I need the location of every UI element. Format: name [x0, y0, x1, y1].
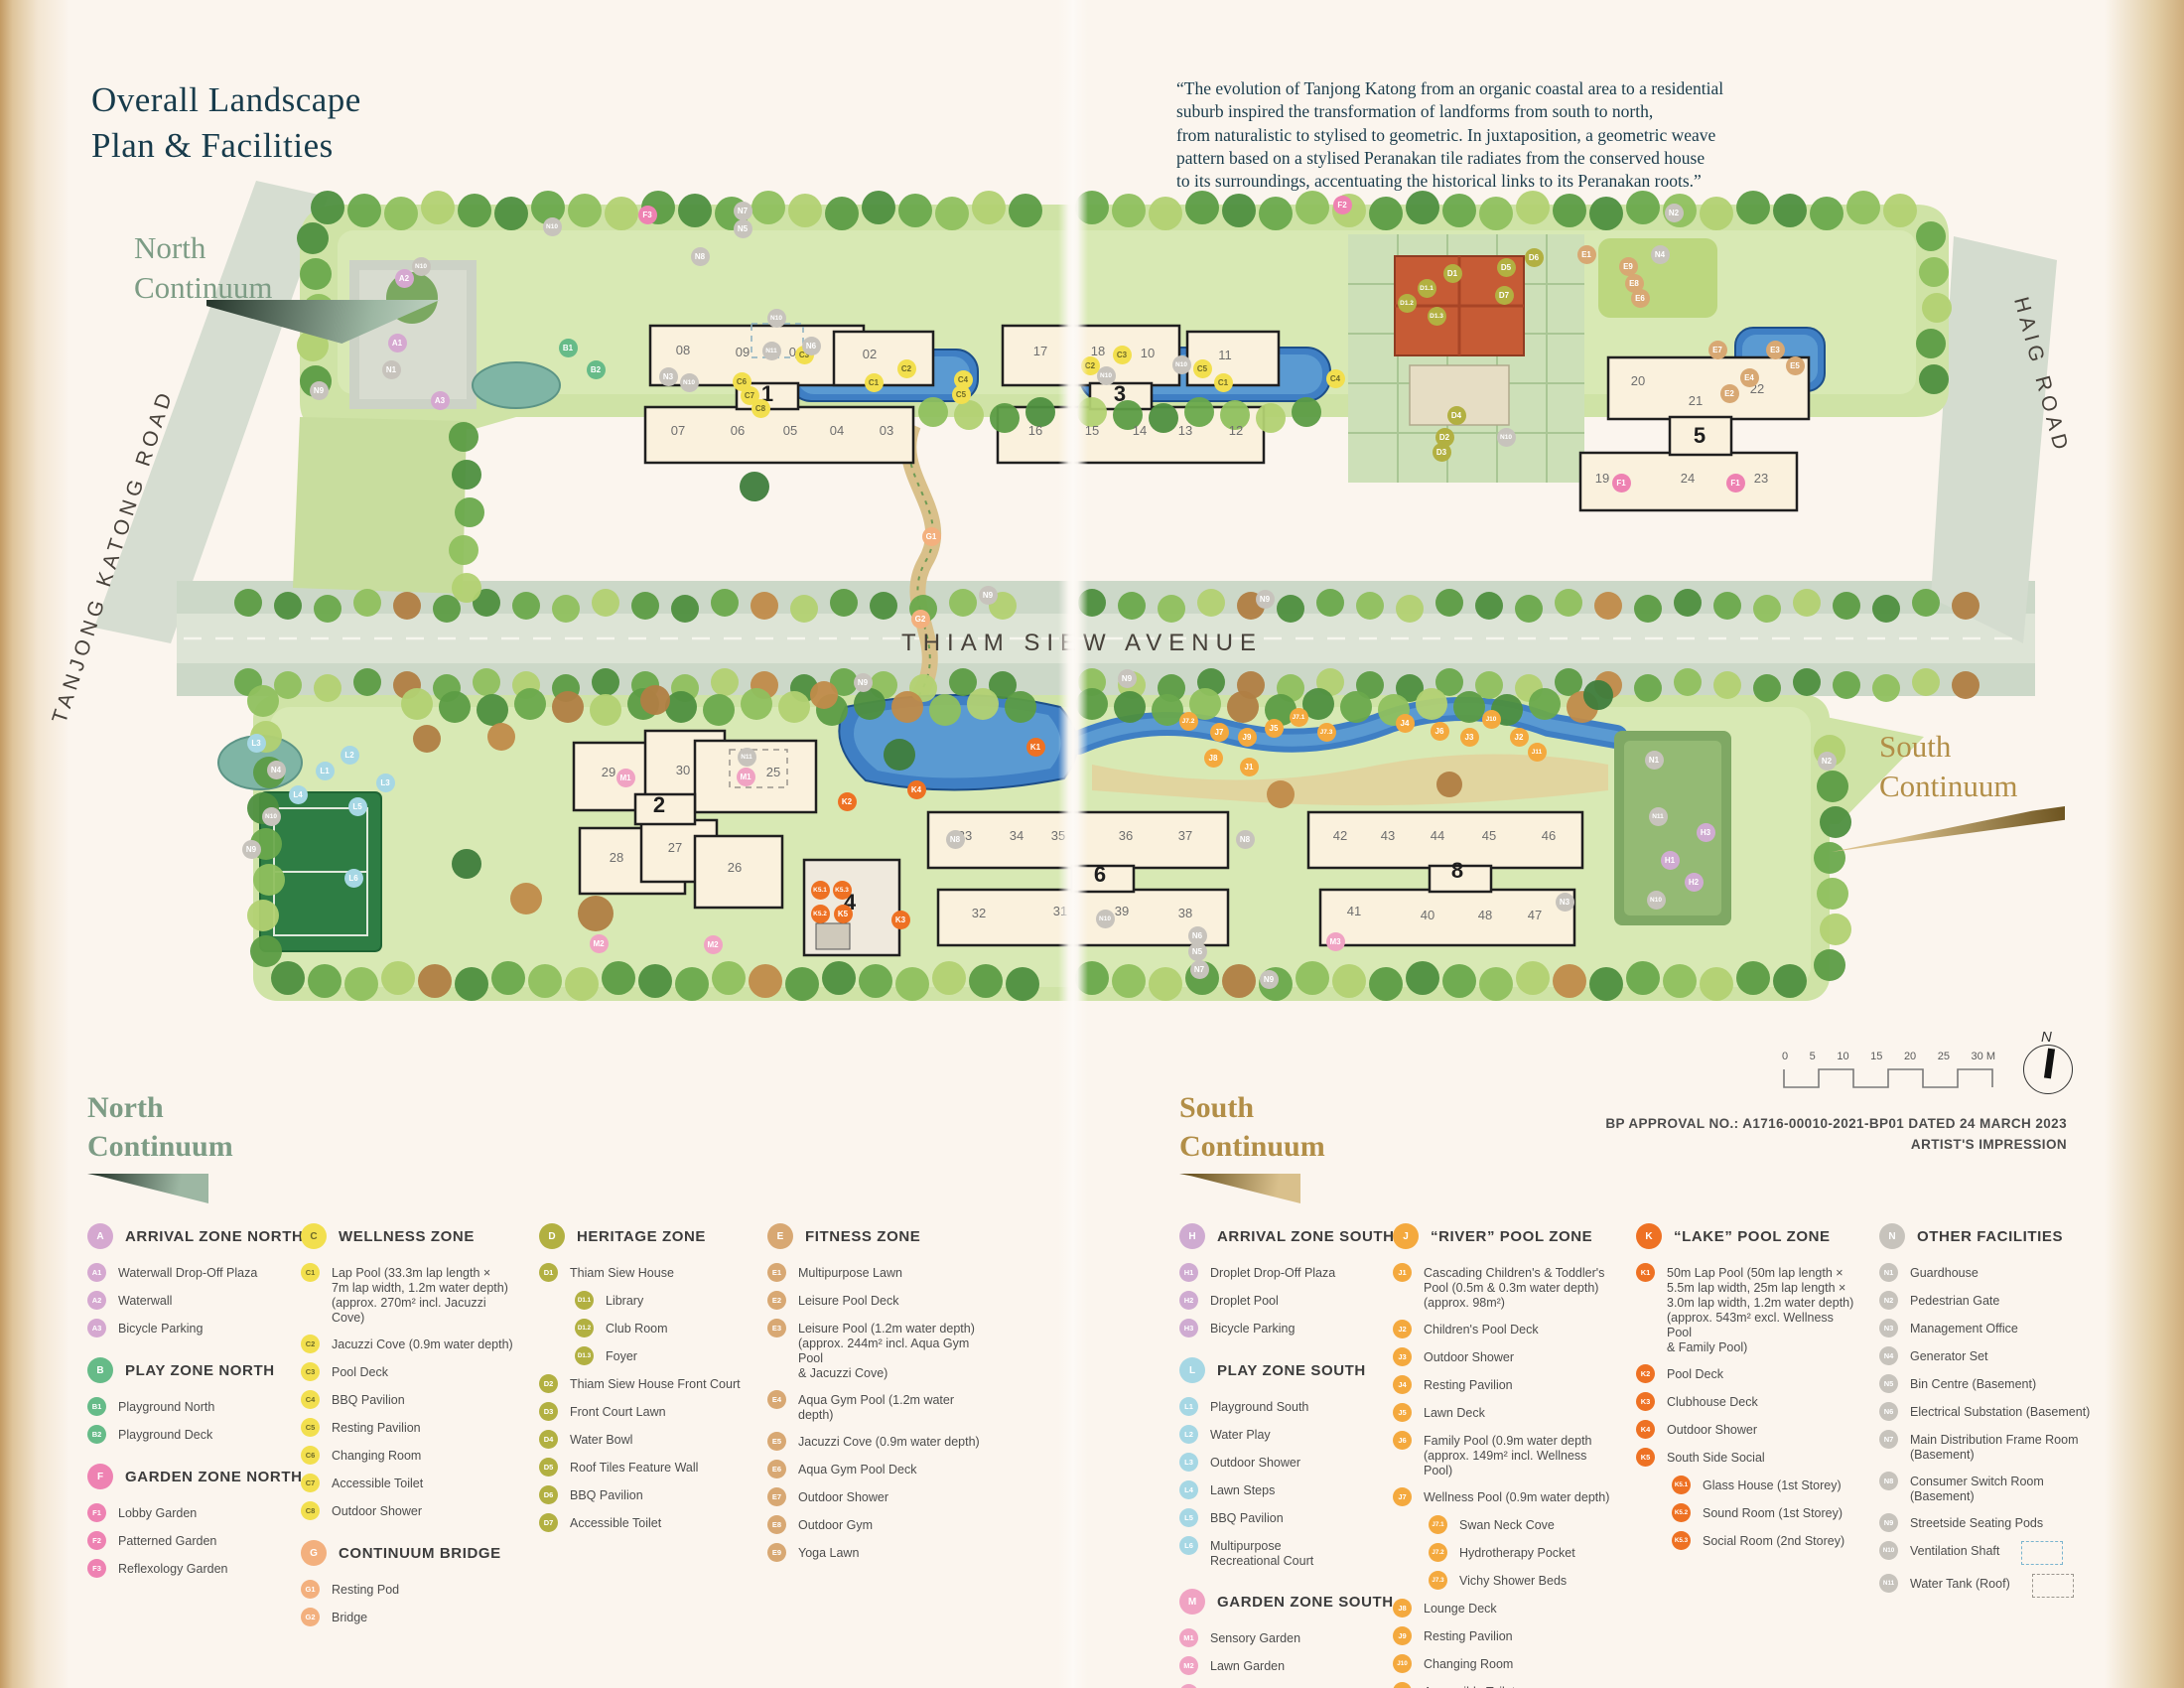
map-marker-n8: N8 — [946, 830, 965, 849]
legend-column: K“LAKE” POOL ZONEK150m Lap Pool (50m lap… — [1636, 1203, 1854, 1559]
legend-zone-badge: C — [301, 1223, 327, 1249]
legend-item-label: Pool Deck — [332, 1362, 388, 1380]
map-marker-n10: N10 — [1096, 910, 1115, 928]
legend-item-badge: K5.1 — [1672, 1476, 1691, 1494]
unit-12: 12 — [1229, 423, 1243, 438]
legend-item-badge: J8 — [1393, 1599, 1412, 1618]
legend-item-label: Thiam Siew House Front Court — [570, 1374, 741, 1392]
map-marker-d4: D4 — [1447, 406, 1466, 425]
scale-tick: 30 M — [1972, 1051, 1995, 1062]
legend-item-label: Lobby Garden — [118, 1503, 197, 1521]
legend-item-badge: N11 — [1879, 1574, 1898, 1593]
legend-item-badge: E5 — [767, 1432, 786, 1451]
legend-item-k5-3: K5.3Social Room (2nd Storey) — [1672, 1531, 1854, 1550]
legend-item-label: Lap Pool (33.3m lap length × 7m lap widt… — [332, 1263, 519, 1326]
legend-item-badge: E9 — [767, 1543, 786, 1562]
legend-item-n2: N2Pedestrian Gate — [1879, 1291, 2098, 1310]
unit-38: 38 — [1178, 906, 1192, 920]
legend-item-label: Leisure Pool (1.2m water depth) (approx.… — [798, 1319, 986, 1381]
legend-column: EFITNESS ZONEE1Multipurpose LawnE2Leisur… — [767, 1203, 986, 1571]
legend-item-e6: E6Aqua Gym Pool Deck — [767, 1460, 986, 1478]
legend-zone-e: EFITNESS ZONE — [767, 1223, 986, 1249]
map-marker-n10: N10 — [412, 257, 431, 276]
legend-item-badge: M3 — [1179, 1684, 1198, 1688]
map-marker-d1.1: D1.1 — [1418, 279, 1436, 298]
map-marker-k5.3: K5.3 — [833, 881, 852, 900]
legend-item-l3: L3Outdoor Shower — [1179, 1453, 1398, 1472]
legend-item-d3: D3Front Court Lawn — [539, 1402, 757, 1421]
legend-zone-name: PLAY ZONE NORTH — [125, 1362, 275, 1379]
unit-03: 03 — [880, 423, 893, 438]
map-marker-d5: D5 — [1497, 258, 1516, 277]
legend-item-label: Cascading Children's & Toddler's Pool (0… — [1424, 1263, 1604, 1311]
map-marker-n3: N3 — [1556, 893, 1574, 912]
legend-item-badge: D1.1 — [575, 1291, 594, 1310]
unit-20: 20 — [1631, 373, 1645, 388]
map-marker-j9: J9 — [1238, 728, 1257, 747]
map-marker-n9: N9 — [1260, 970, 1279, 989]
legend-item-badge: E6 — [767, 1460, 786, 1478]
legend-item-badge: J5 — [1393, 1403, 1412, 1422]
legend-item-k2: K2Pool Deck — [1636, 1364, 1854, 1383]
legend-item-label: Outdoor Shower — [1424, 1347, 1514, 1365]
legend-item-d1-2: D1.2Club Room — [575, 1319, 757, 1337]
scale-tick: 10 — [1837, 1051, 1848, 1062]
unit-42: 42 — [1333, 828, 1347, 843]
map-marker-k1: K1 — [1026, 738, 1045, 757]
legend-item-label: Resting Pavilion — [332, 1418, 421, 1436]
compass: N — [2017, 1033, 2079, 1094]
unit-11: 11 — [1218, 348, 1232, 362]
legend-item-l2: L2Water Play — [1179, 1425, 1398, 1444]
map-marker-c2: C2 — [897, 359, 916, 378]
legend-item-e5: E5Jacuzzi Cove (0.9m water depth) — [767, 1432, 986, 1451]
legend-item-e2: E2Leisure Pool Deck — [767, 1291, 986, 1310]
legend-item-m2: M2Lawn Garden — [1179, 1656, 1398, 1675]
legend-item-label: Club Room — [606, 1319, 668, 1336]
unit-35: 35 — [1051, 828, 1065, 843]
legend-item-label: Bridge — [332, 1608, 367, 1625]
map-marker-f3: F3 — [638, 206, 657, 224]
legend-item-j7-1: J7.1Swan Neck Cove — [1429, 1515, 1611, 1534]
map-marker-n8: N8 — [691, 247, 710, 266]
legend-zone-badge: A — [87, 1223, 113, 1249]
legend-item-badge: N5 — [1879, 1374, 1898, 1393]
legend-item-k4: K4Outdoor Shower — [1636, 1420, 1854, 1439]
legend-zone-badge: D — [539, 1223, 565, 1249]
legend-zone-badge: K — [1636, 1223, 1662, 1249]
legend-item-j3: J3Outdoor Shower — [1393, 1347, 1611, 1366]
map-marker-l1: L1 — [316, 762, 335, 780]
map-marker-m1: M1 — [616, 769, 635, 787]
legend-item-badge: F3 — [87, 1559, 106, 1578]
map-marker-e6: E6 — [1631, 289, 1650, 308]
map-marker-d3: D3 — [1433, 443, 1451, 462]
legend-item-c4: C4BBQ Pavilion — [301, 1390, 519, 1409]
map-marker-h2: H2 — [1685, 873, 1704, 892]
legend-item-badge: G1 — [301, 1580, 320, 1599]
legend-zone-name: CONTINUUM BRIDGE — [339, 1545, 501, 1562]
legend-item-badge: J9 — [1393, 1626, 1412, 1645]
legend-item-badge: K5 — [1636, 1448, 1655, 1467]
map-marker-j2: J2 — [1510, 728, 1529, 747]
legend-item-badge: D7 — [539, 1513, 558, 1532]
legend-item-l4: L4Lawn Steps — [1179, 1480, 1398, 1499]
map-marker-c1: C1 — [865, 373, 884, 392]
legend-item-label: Management Office — [1910, 1319, 2018, 1336]
legend-item-j7-2: J7.2Hydrotherapy Pocket — [1429, 1543, 1611, 1562]
unit-29: 29 — [602, 765, 615, 779]
legend-item-n1: N1Guardhouse — [1879, 1263, 2098, 1282]
legend-item-badge: N7 — [1879, 1430, 1898, 1449]
unit-16: 16 — [1028, 423, 1042, 438]
legend-item-h3: H3Bicycle Parking — [1179, 1319, 1398, 1337]
legend-item-j7: J7Wellness Pool (0.9m water depth) — [1393, 1487, 1611, 1506]
legend-item-badge: E4 — [767, 1390, 786, 1409]
legend-item-badge: N2 — [1879, 1291, 1898, 1310]
map-marker-e2: E2 — [1720, 384, 1739, 403]
map-marker-n7: N7 — [734, 202, 752, 220]
legend-item-c7: C7Accessible Toilet — [301, 1474, 519, 1492]
map-marker-n10: N10 — [680, 373, 699, 392]
map-marker-g2: G2 — [911, 610, 930, 629]
legend-zone-name: OTHER FACILITIES — [1917, 1228, 2063, 1245]
legend-item-n5: N5Bin Centre (Basement) — [1879, 1374, 2098, 1393]
map-marker-e3: E3 — [1766, 341, 1785, 359]
legend-item-label: Accessible Toilet — [332, 1474, 423, 1491]
map-marker-m2: M2 — [590, 934, 609, 953]
legend-item-badge: A1 — [87, 1263, 106, 1282]
scale-tick: 0 — [1782, 1051, 1788, 1062]
legend-item-label: Outdoor Shower — [798, 1487, 888, 1505]
scale-bar-steps — [1782, 1065, 1995, 1091]
legend-item-badge: D4 — [539, 1430, 558, 1449]
map-marker-f2: F2 — [1333, 196, 1352, 214]
map-marker-c5: C5 — [952, 385, 971, 404]
legend-item-d4: D4Water Bowl — [539, 1430, 757, 1449]
legend-item-badge: J7.3 — [1429, 1571, 1447, 1590]
legend-item-badge: C6 — [301, 1446, 320, 1465]
unit-06: 06 — [731, 423, 745, 438]
unit-26: 26 — [728, 860, 742, 875]
map-marker-k2: K2 — [838, 792, 857, 811]
legend-item-c3: C3Pool Deck — [301, 1362, 519, 1381]
legend-item-e7: E7Outdoor Shower — [767, 1487, 986, 1506]
map-marker-j4: J4 — [1396, 714, 1415, 733]
legend-item-badge: K5.3 — [1672, 1531, 1691, 1550]
legend-item-label: Library — [606, 1291, 643, 1309]
legend-zone-c: CWELLNESS ZONE — [301, 1223, 519, 1249]
map-marker-k4: K4 — [907, 780, 926, 799]
legend-item-label: Outdoor Shower — [1667, 1420, 1757, 1438]
map-marker-k5: K5 — [834, 905, 853, 923]
legend-item-badge: G2 — [301, 1608, 320, 1626]
legend-item-label: Reflexology Garden — [118, 1559, 227, 1577]
legend-item-label: Hydrotherapy Pocket — [1459, 1543, 1575, 1561]
unit-09: 09 — [736, 345, 750, 359]
legend-item-e3: E3Leisure Pool (1.2m water depth) (appro… — [767, 1319, 986, 1381]
legend-item-j11: J11Accessible Toilet — [1393, 1682, 1611, 1688]
legend-south-wedge — [1179, 1174, 1300, 1203]
unit-47: 47 — [1528, 908, 1542, 922]
legend-item-n10: N10Ventilation Shaft — [1879, 1541, 2098, 1565]
legend-item-label: Pool Deck — [1667, 1364, 1723, 1382]
legend-item-badge: F2 — [87, 1531, 106, 1550]
legend-item-label: Waterwall — [118, 1291, 172, 1309]
unit-39: 39 — [1115, 904, 1129, 918]
map-marker-c8: C8 — [751, 399, 770, 418]
map-marker-d1.3: D1.3 — [1428, 307, 1446, 326]
legend-item-label: Lawn Deck — [1424, 1403, 1485, 1421]
legend-item-label: Swan Neck Cove — [1459, 1515, 1555, 1533]
map-marker-n8: N8 — [1236, 830, 1255, 849]
legend-zone-name: ARRIVAL ZONE NORTH — [125, 1228, 303, 1245]
legend-swatch-dashed-blue — [2021, 1541, 2063, 1565]
legend-item-badge: E1 — [767, 1263, 786, 1282]
legend-item-label: Bicycle Parking — [118, 1319, 203, 1336]
legend-item-badge: H3 — [1179, 1319, 1198, 1337]
map-marker-n10: N10 — [543, 217, 562, 236]
legend-item-m3: M3Reflexology Garden — [1179, 1684, 1398, 1688]
legend-item-c2: C2Jacuzzi Cove (0.9m water depth) — [301, 1335, 519, 1353]
legend-item-j10: J10Changing Room — [1393, 1654, 1611, 1673]
legend-item-badge: D1 — [539, 1263, 558, 1282]
legend-item-badge: J4 — [1393, 1375, 1412, 1394]
unit-08: 08 — [676, 343, 690, 357]
unit-24: 24 — [1681, 471, 1695, 486]
map-marker-d6: D6 — [1525, 248, 1544, 267]
map-marker-k3: K3 — [891, 911, 910, 929]
unit-43: 43 — [1381, 828, 1395, 843]
map-marker-k5.1: K5.1 — [811, 881, 830, 900]
legend-item-badge: E2 — [767, 1291, 786, 1310]
unit-41: 41 — [1347, 904, 1361, 918]
legend-item-d1: D1Thiam Siew House — [539, 1263, 757, 1282]
legend-item-j7-3: J7.3Vichy Shower Beds — [1429, 1571, 1611, 1590]
legend-item-d5: D5Roof Tiles Feature Wall — [539, 1458, 757, 1477]
map-marker-h3: H3 — [1697, 823, 1715, 842]
legend-item-badge: J6 — [1393, 1431, 1412, 1450]
unit-32: 32 — [972, 906, 986, 920]
legend-zone-j: J“RIVER” POOL ZONE — [1393, 1223, 1611, 1249]
legend-item-h1: H1Droplet Drop-Off Plaza — [1179, 1263, 1398, 1282]
legend-item-badge: L5 — [1179, 1508, 1198, 1527]
legend-item-label: Leisure Pool Deck — [798, 1291, 898, 1309]
legend-item-badge: H2 — [1179, 1291, 1198, 1310]
bio-pond — [473, 362, 560, 408]
legend-zone-f: FGARDEN ZONE NORTH — [87, 1464, 306, 1489]
legend-item-n8: N8Consumer Switch Room (Basement) — [1879, 1472, 2098, 1504]
unit-46: 46 — [1542, 828, 1556, 843]
map-marker-k5.2: K5.2 — [811, 905, 830, 923]
legend-zone-badge: L — [1179, 1357, 1205, 1383]
legend-item-label: Lounge Deck — [1424, 1599, 1497, 1617]
legend-item-j2: J2Children's Pool Deck — [1393, 1320, 1611, 1338]
legend-item-badge: D5 — [539, 1458, 558, 1477]
road-label-thiam-siew: THIAM SIEW AVENUE — [901, 630, 1263, 656]
map-marker-n3: N3 — [659, 367, 678, 386]
legend-item-badge: N3 — [1879, 1319, 1898, 1337]
legend-item-label: Clubhouse Deck — [1667, 1392, 1758, 1410]
map-marker-h1: H1 — [1661, 851, 1680, 870]
unit-17: 17 — [1033, 344, 1047, 358]
legend-item-badge: M1 — [1179, 1628, 1198, 1647]
map-marker-n11: N11 — [762, 342, 781, 360]
map-marker-n10: N10 — [1647, 891, 1666, 910]
legend-item-a2: A2Waterwall — [87, 1291, 306, 1310]
legend-item-badge: E3 — [767, 1319, 786, 1337]
unit-10: 10 — [1141, 346, 1155, 360]
legend-item-badge: L6 — [1179, 1536, 1198, 1555]
legend-zone-name: FITNESS ZONE — [805, 1228, 920, 1245]
unit-31: 31 — [1053, 904, 1067, 918]
legend-item-label: Droplet Drop-Off Plaza — [1210, 1263, 1335, 1281]
legend-item-label: Multipurpose Recreational Court — [1210, 1536, 1313, 1569]
legend-item-label: Ventilation Shaft — [1910, 1541, 1999, 1559]
legend-zone-badge: B — [87, 1357, 113, 1383]
road-haig — [1931, 236, 2057, 643]
legend-item-badge: C7 — [301, 1474, 320, 1492]
legend-item-label: Jacuzzi Cove (0.9m water depth) — [798, 1432, 980, 1450]
legend-item-badge: N10 — [1879, 1541, 1898, 1560]
legend-item-badge: J1 — [1393, 1263, 1412, 1282]
legend-item-j6: J6Family Pool (0.9m water depth (approx.… — [1393, 1431, 1611, 1478]
map-marker-j3: J3 — [1460, 728, 1479, 747]
map-marker-c4: C4 — [1326, 369, 1345, 388]
legend-item-badge: N9 — [1879, 1513, 1898, 1532]
legend-zone-badge: H — [1179, 1223, 1205, 1249]
legend-item-label: BBQ Pavilion — [1210, 1508, 1284, 1526]
legend-item-j9: J9Resting Pavilion — [1393, 1626, 1611, 1645]
legend-item-label: Outdoor Shower — [1210, 1453, 1300, 1471]
legend-item-label: Multipurpose Lawn — [798, 1263, 902, 1281]
legend-item-badge: K2 — [1636, 1364, 1655, 1383]
legend-item-e9: E9Yoga Lawn — [767, 1543, 986, 1562]
legend-item-label: Accessible Toilet — [1424, 1682, 1515, 1688]
compass-north-label: N — [2041, 1029, 2052, 1046]
legend-item-l5: L5BBQ Pavilion — [1179, 1508, 1398, 1527]
legend-item-badge: C8 — [301, 1501, 320, 1520]
legend-zone-h: HARRIVAL ZONE SOUTH — [1179, 1223, 1398, 1249]
legend-zone-b: BPLAY ZONE NORTH — [87, 1357, 306, 1383]
map-marker-b1: B1 — [559, 339, 578, 357]
legend-item-label: Aqua Gym Pool (1.2m water depth) — [798, 1390, 986, 1423]
legend-item-a1: A1Waterwall Drop-Off Plaza — [87, 1263, 306, 1282]
legend-item-badge: L4 — [1179, 1480, 1198, 1499]
legend-item-f2: F2Patterned Garden — [87, 1531, 306, 1550]
unit-19: 19 — [1595, 471, 1609, 486]
legend-item-label: Family Pool (0.9m water depth (approx. 1… — [1424, 1431, 1611, 1478]
legend-item-label: Roof Tiles Feature Wall — [570, 1458, 698, 1476]
map-marker-n10: N10 — [1497, 428, 1516, 447]
legend-item-badge: D6 — [539, 1485, 558, 1504]
legend-item-label: Outdoor Shower — [332, 1501, 422, 1519]
scale-bar: 051015202530 M — [1782, 1051, 1995, 1096]
map-marker-f1: F1 — [1726, 474, 1745, 492]
map-marker-n9: N9 — [979, 586, 998, 605]
legend-item-f1: F1Lobby Garden — [87, 1503, 306, 1522]
unit-45: 45 — [1482, 828, 1496, 843]
legend-item-label: Reflexology Garden — [1210, 1684, 1319, 1688]
legend-zone-name: ARRIVAL ZONE SOUTH — [1217, 1228, 1395, 1245]
legend-item-label: Patterned Garden — [118, 1531, 216, 1549]
legend-item-l6: L6Multipurpose Recreational Court — [1179, 1536, 1398, 1569]
map-marker-n7: N7 — [1190, 960, 1209, 979]
legend-zone-name: WELLNESS ZONE — [339, 1228, 475, 1245]
legend-item-badge: L2 — [1179, 1425, 1198, 1444]
map-marker-e4: E4 — [1740, 368, 1759, 387]
unit-02: 02 — [863, 347, 877, 361]
map-marker-l5: L5 — [348, 797, 367, 816]
unit-14: 14 — [1133, 423, 1147, 438]
legend-item-label: Water Play — [1210, 1425, 1271, 1443]
map-marker-n11: N11 — [1649, 807, 1668, 826]
legend-item-d1-1: D1.1Library — [575, 1291, 757, 1310]
legend-item-n11: N11Water Tank (Roof) — [1879, 1574, 2098, 1598]
legend-zone-m: MGARDEN ZONE SOUTH — [1179, 1589, 1398, 1615]
map-marker-n10: N10 — [262, 807, 281, 826]
legend-item-badge: J11 — [1393, 1682, 1412, 1688]
legend-item-a3: A3Bicycle Parking — [87, 1319, 306, 1337]
map-marker-a2: A2 — [395, 269, 414, 288]
scale-tick: 25 — [1938, 1051, 1950, 1062]
brochure-spread: Overall Landscape Plan & Facilities “The… — [0, 0, 2184, 1688]
unit-40: 40 — [1421, 908, 1434, 922]
unit-36: 36 — [1119, 828, 1133, 843]
legend-item-g1: G1Resting Pod — [301, 1580, 519, 1599]
map-marker-n9: N9 — [242, 840, 261, 859]
legend-item-k5-1: K5.1Glass House (1st Storey) — [1672, 1476, 1854, 1494]
map-marker-j10: J10 — [1482, 710, 1501, 729]
legend-column: HARRIVAL ZONE SOUTHH1Droplet Drop-Off Pl… — [1179, 1203, 1398, 1688]
legend-item-n6: N6Electrical Substation (Basement) — [1879, 1402, 2098, 1421]
legend-item-badge: A3 — [87, 1319, 106, 1337]
map-marker-l6: L6 — [344, 869, 363, 888]
legend-item-badge: N6 — [1879, 1402, 1898, 1421]
unit-37: 37 — [1178, 828, 1192, 843]
legend-item-label: Resting Pavilion — [1424, 1375, 1513, 1393]
legend-item-label: Outdoor Gym — [798, 1515, 873, 1533]
scale-tick: 15 — [1870, 1051, 1882, 1062]
map-marker-f1: F1 — [1612, 474, 1631, 492]
legend-item-badge: C4 — [301, 1390, 320, 1409]
legend-item-badge: C3 — [301, 1362, 320, 1381]
legend-column: DHERITAGE ZONED1Thiam Siew HouseD1.1Libr… — [539, 1203, 757, 1541]
map-marker-e9: E9 — [1619, 257, 1638, 276]
legend-item-label: Wellness Pool (0.9m water depth) — [1424, 1487, 1609, 1505]
legend-item-label: South Side Social — [1667, 1448, 1765, 1466]
legend-zone-name: GARDEN ZONE SOUTH — [1217, 1594, 1394, 1611]
legend-item-d7: D7Accessible Toilet — [539, 1513, 757, 1532]
unit-25: 25 — [766, 765, 780, 779]
map-marker-n2: N2 — [1665, 204, 1684, 222]
legend-item-label: Aqua Gym Pool Deck — [798, 1460, 917, 1477]
map-marker-l2: L2 — [341, 746, 359, 765]
legend-item-c8: C8Outdoor Shower — [301, 1501, 519, 1520]
map-marker-n4: N4 — [1651, 245, 1670, 264]
map-marker-g1: G1 — [922, 527, 941, 546]
map-marker-n9: N9 — [1256, 590, 1275, 609]
legend-item-badge: N8 — [1879, 1472, 1898, 1490]
map-marker-a1: A1 — [388, 334, 407, 352]
legend-column: J“RIVER” POOL ZONEJ1Cascading Children's… — [1393, 1203, 1611, 1688]
legend-zone-n: NOTHER FACILITIES — [1879, 1223, 2098, 1249]
legend-zone-name: GARDEN ZONE NORTH — [125, 1469, 303, 1485]
legend-item-label: Generator Set — [1910, 1346, 1988, 1364]
map-marker-c5: C5 — [1193, 359, 1212, 378]
map-marker-b2: B2 — [587, 360, 606, 379]
map-marker-m1: M1 — [737, 768, 755, 786]
